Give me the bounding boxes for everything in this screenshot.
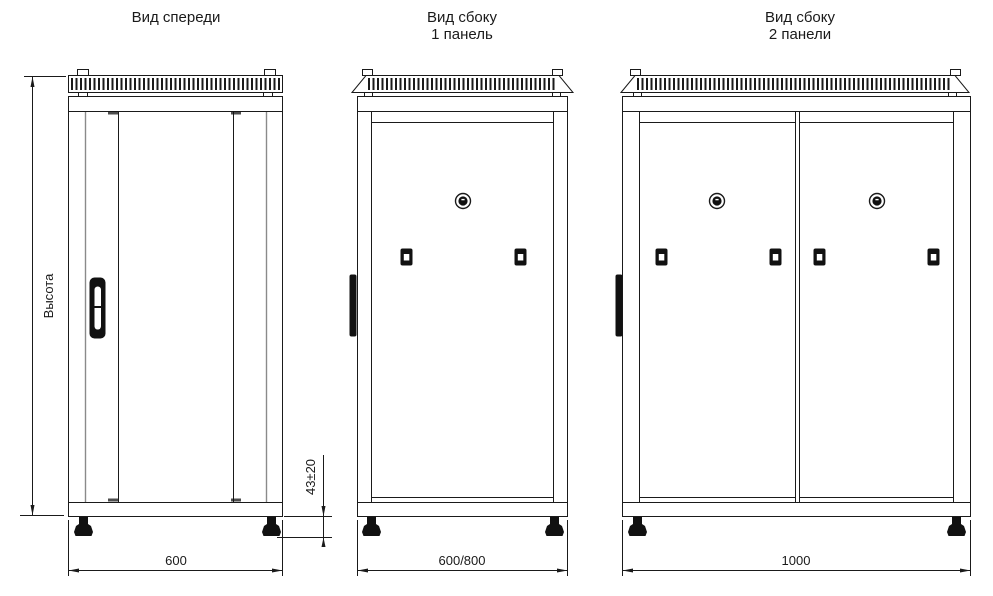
arrow-right-icon — [557, 569, 568, 573]
leveling-foot — [545, 517, 564, 536]
side-view-1panel: Вид сбоку 1 панель — [350, 9, 574, 536]
grille-support — [553, 93, 561, 97]
door-handle — [90, 278, 106, 339]
feet-height-label: 43±20 — [303, 459, 318, 495]
panel-latch — [401, 249, 413, 266]
hinge-mark — [231, 112, 241, 115]
grille-tab-icon — [78, 70, 89, 76]
bottom-frame-band — [623, 503, 971, 517]
grille-tab-icon — [265, 70, 276, 76]
leveling-foot — [628, 517, 647, 536]
leveling-foot — [262, 517, 281, 536]
side1-title-line1: Вид сбоку — [427, 9, 497, 26]
panel-latch — [656, 249, 668, 266]
arrow-down-icon — [31, 505, 35, 516]
leveling-foot — [74, 517, 93, 536]
arrow-left-icon — [623, 569, 634, 573]
grille-tab-icon — [363, 70, 373, 76]
side2-depth-dimension: 1000 — [623, 520, 971, 576]
arrow-down-icon — [322, 506, 326, 517]
grille-tab-icon — [631, 70, 641, 76]
arrow-up-icon — [31, 77, 35, 88]
panel-latch — [928, 249, 940, 266]
door-handle-profile — [616, 275, 623, 337]
arrow-right-icon — [960, 569, 971, 573]
front-view-title: Вид спереди — [132, 9, 221, 26]
grille-support — [365, 93, 373, 97]
panel-latch — [770, 249, 782, 266]
grille-tab-icon — [951, 70, 961, 76]
top-frame-band — [358, 97, 568, 112]
front-width-label: 600 — [165, 553, 187, 568]
height-dimension: Высота — [20, 77, 66, 516]
round-lock — [870, 194, 885, 209]
grille-support — [264, 93, 273, 97]
front-view: Вид спереди — [69, 9, 283, 536]
side2-title-line2: 2 панели — [769, 26, 831, 43]
hinge-mark — [108, 112, 118, 115]
hinge-mark — [108, 499, 118, 502]
cabinet-body — [623, 112, 971, 503]
front-width-dimension: 600 — [69, 520, 283, 576]
drawing-canvas: Вид спереди — [0, 0, 993, 596]
leveling-foot — [947, 517, 966, 536]
panel-latch — [515, 249, 527, 266]
bottom-frame-band — [358, 503, 568, 517]
grille-support — [634, 93, 642, 97]
door-handle-profile — [350, 275, 357, 337]
bottom-frame-band — [69, 503, 283, 517]
leveling-foot — [362, 517, 381, 536]
side1-depth-label: 600/800 — [439, 553, 486, 568]
feet-height-dimension: 43±20 — [277, 455, 332, 547]
round-lock — [710, 194, 725, 209]
grille-support — [79, 93, 88, 97]
grille-support — [949, 93, 957, 97]
cabinet-drawing: Вид спереди — [0, 0, 993, 596]
top-frame-band — [69, 97, 283, 112]
grille-hatch-icon — [72, 78, 279, 90]
side1-title-line2: 1 панель — [431, 26, 493, 43]
arrow-up-icon — [322, 538, 326, 548]
side-view-2panels: Вид сбоку 2 панели — [616, 9, 971, 536]
side2-depth-label: 1000 — [782, 553, 811, 568]
arrow-right-icon — [272, 569, 283, 573]
arrow-left-icon — [358, 569, 369, 573]
top-frame-band — [623, 97, 971, 112]
round-lock — [456, 194, 471, 209]
hinge-mark — [231, 499, 241, 502]
cabinet-body — [358, 112, 568, 503]
height-dimension-label: Высота — [41, 273, 56, 318]
grille-tab-icon — [553, 70, 563, 76]
panel-latch — [814, 249, 826, 266]
arrow-left-icon — [69, 569, 80, 573]
side2-title-line1: Вид сбоку — [765, 9, 835, 26]
side1-depth-dimension: 600/800 — [358, 520, 568, 576]
